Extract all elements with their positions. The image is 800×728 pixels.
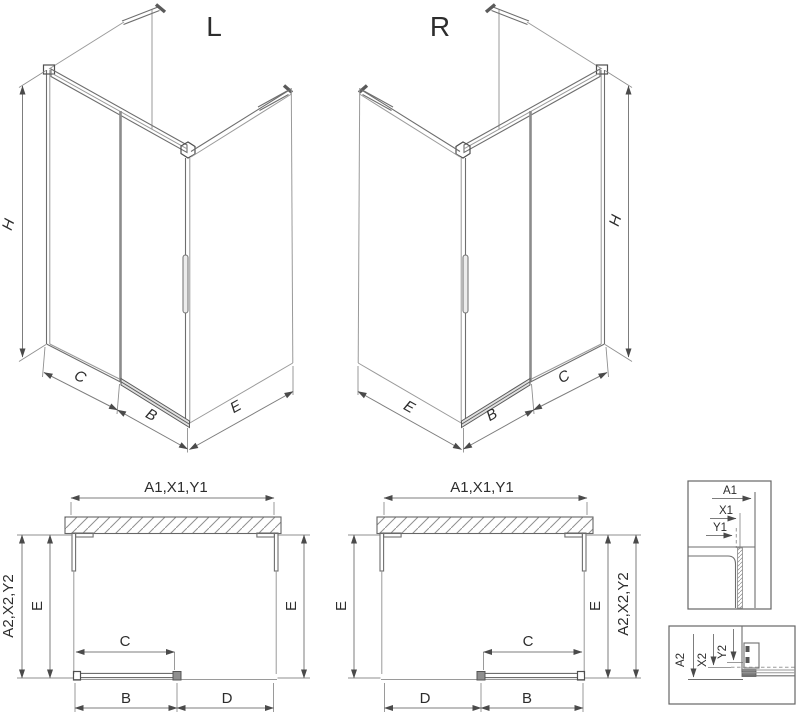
variant-label-left: L xyxy=(206,11,222,42)
detail-wall-profile-frame xyxy=(688,481,771,609)
plan-right-travel-label: C xyxy=(523,633,534,650)
variant-label-right: R xyxy=(430,11,450,42)
plan-right-depth-outer-label: A2,X2,Y2 xyxy=(615,572,632,635)
plan-right-width-label: A1,X1,Y1 xyxy=(450,479,513,496)
plan-right-depth-left-label: E xyxy=(333,601,350,611)
plan-left-width-label: A1,X1,Y1 xyxy=(144,479,207,496)
detail-x1-label: X1 xyxy=(719,505,733,517)
plan-left-depth-outer-label: A2,X2,Y2 xyxy=(0,574,17,637)
glass-cross-section xyxy=(738,548,743,608)
plan-right-depth-inner-label: E xyxy=(587,601,604,611)
plan-left-wall-band xyxy=(65,517,281,534)
plan-left-depth-inner-label: E xyxy=(29,601,46,611)
plan-left-opening-label: D xyxy=(222,690,233,707)
shower-enclosure-technical-drawing: L R H C B E H E B C A1,X1,Y1 A2,X2,Y2 E … xyxy=(0,0,800,728)
detail-a2-label: A2 xyxy=(675,653,687,667)
plan-left-travel-label: C xyxy=(120,633,131,650)
detail-bottom-rail: A2 X2 Y2 xyxy=(669,626,795,704)
plan-left-door-label: B xyxy=(121,690,131,707)
detail-wall-profile: A1 X1 Y1 xyxy=(688,481,771,609)
roller-fixing-top xyxy=(746,646,750,652)
plan-right-opening-label: D xyxy=(420,690,431,707)
detail-a1-label: A1 xyxy=(723,485,737,497)
plan-right-wall-band xyxy=(377,517,593,534)
roller-fixing-bottom xyxy=(746,657,750,663)
plan-left-depth-right-label: E xyxy=(283,601,300,611)
detail-bottom-rail-frame xyxy=(669,626,795,704)
plan-right-door-label: B xyxy=(522,690,532,707)
detail-y1-label: Y1 xyxy=(713,522,727,534)
detail-x2-label: X2 xyxy=(697,653,709,667)
drawing-canvas: L R H C B E H E B C A1,X1,Y1 A2,X2,Y2 E … xyxy=(0,0,800,728)
detail-y2-label: Y2 xyxy=(717,645,729,659)
